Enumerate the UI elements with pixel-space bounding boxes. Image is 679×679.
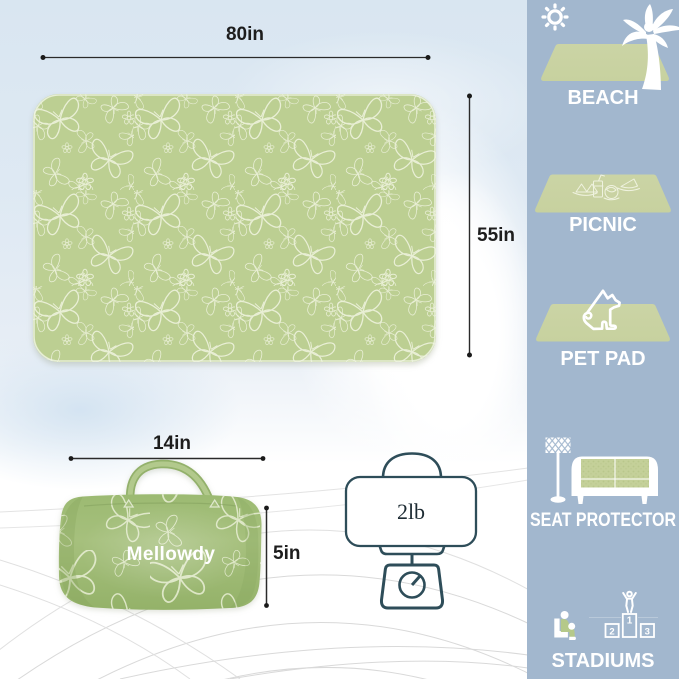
- svg-text:SEAT PROTECTOR: SEAT PROTECTOR: [530, 510, 676, 531]
- svg-text:BEACH: BEACH: [567, 87, 638, 109]
- svg-text:Mellowdy: Mellowdy: [127, 544, 216, 565]
- svg-text:2lb: 2lb: [397, 499, 425, 524]
- svg-text:STADIUMS: STADIUMS: [552, 650, 655, 672]
- svg-text:1: 1: [627, 616, 633, 627]
- svg-text:2: 2: [609, 627, 614, 638]
- svg-text:PET PAD: PET PAD: [560, 348, 645, 370]
- svg-text:PICNIC: PICNIC: [569, 214, 637, 236]
- svg-text:3: 3: [645, 627, 650, 638]
